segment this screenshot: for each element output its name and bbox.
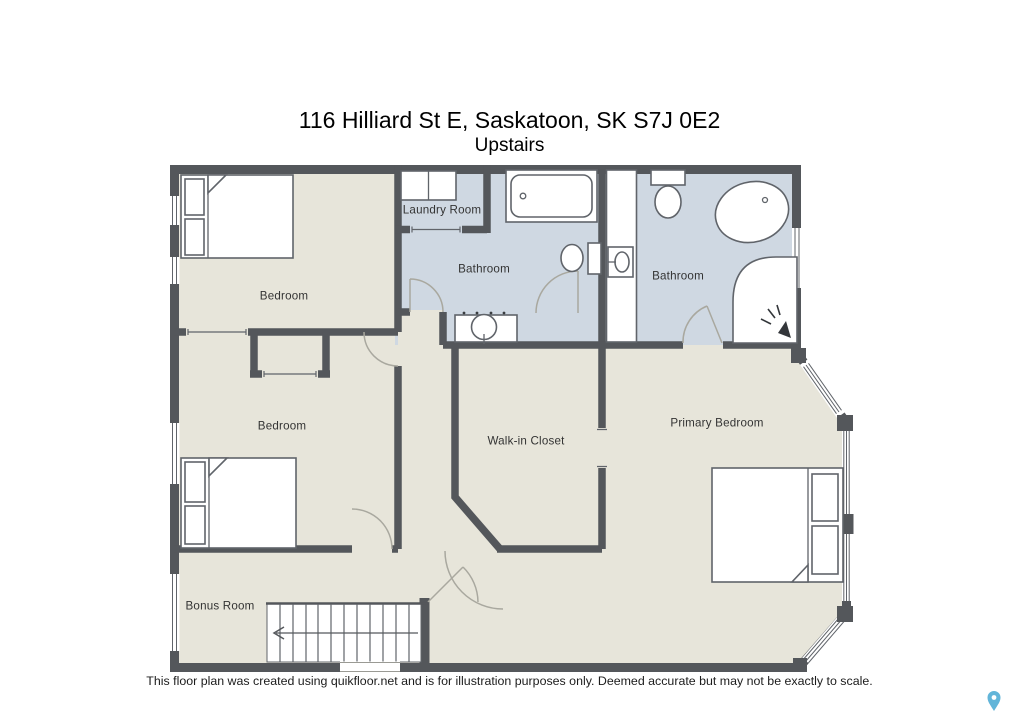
wall-corner (791, 348, 806, 363)
stair-landing-opening (340, 662, 400, 674)
bed-icon (712, 468, 843, 582)
room-label-bathroom-ensuite: Bathroom (652, 270, 704, 283)
sink-icon (455, 312, 517, 344)
washer-dryer-icon (401, 171, 456, 200)
wall-corner (837, 415, 853, 431)
room-label-bedroom-middle: Bedroom (258, 420, 306, 433)
window-icon (170, 257, 180, 284)
bed-icon (181, 175, 293, 258)
room-label-bathroom-main: Bathroom (458, 263, 510, 276)
bed-icon (181, 458, 296, 548)
disclaimer-text: This floor plan was created using quikfl… (0, 674, 1019, 688)
room-label-walk-in-closet: Walk-in Closet (487, 435, 564, 448)
page-title: 116 Hilliard St E, Saskatoon, SK S7J 0E2 (0, 106, 1019, 134)
room-label-laundry: Laundry Room (403, 204, 481, 217)
window-icon (170, 574, 180, 651)
stairs-icon (266, 604, 429, 663)
floor-plan-page: 116 Hilliard St E, Saskatoon, SK S7J 0E2… (0, 0, 1019, 720)
map-pin-icon (988, 691, 1001, 711)
page-subtitle: Upstairs (0, 134, 1019, 158)
wall-corner (793, 658, 807, 672)
window-icon (170, 423, 180, 484)
wall-corner (837, 606, 853, 622)
shower-icon (733, 257, 797, 343)
room-label-primary-bedroom: Primary Bedroom (670, 417, 763, 430)
bathtub-icon (506, 170, 597, 222)
room-label-bedroom-top: Bedroom (260, 290, 308, 303)
sink-icon (608, 247, 633, 277)
window-icon (170, 196, 180, 225)
room-label-bonus-room: Bonus Room (185, 600, 254, 613)
